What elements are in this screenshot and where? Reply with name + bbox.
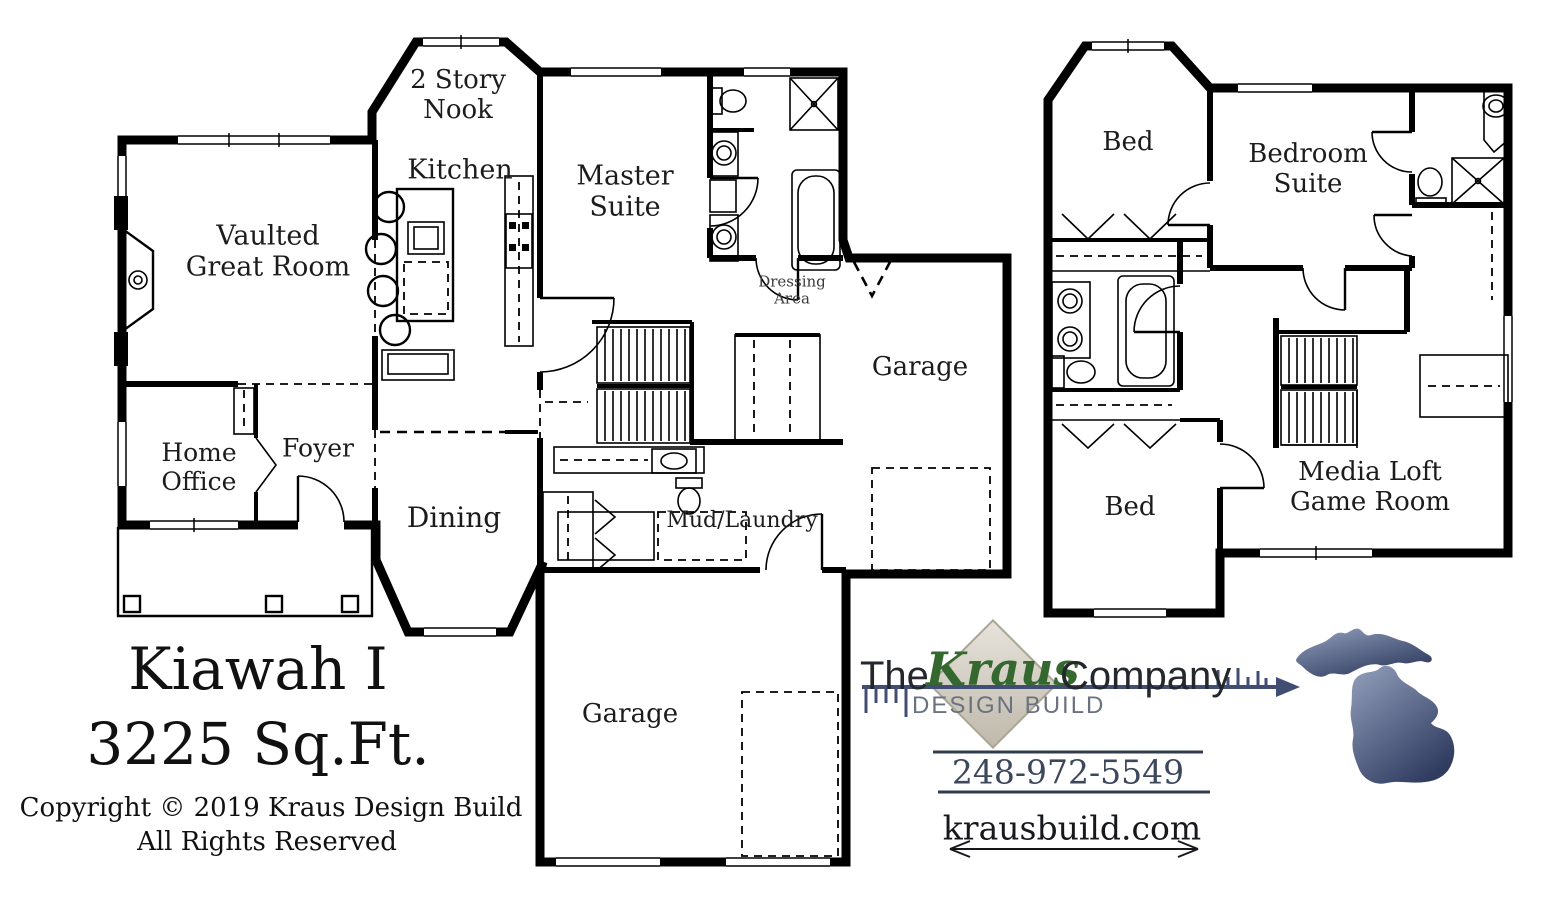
- room-label-nook: 2 Story Nook: [410, 65, 506, 125]
- porch: [118, 527, 372, 616]
- rights-line: All Rights Reserved: [137, 827, 397, 857]
- plan-title: Kiawah I: [128, 635, 387, 703]
- copyright-line: Copyright © 2019 Kraus Design Build: [20, 793, 523, 823]
- logo-kraus-text: Kraus: [926, 642, 1079, 696]
- room-label-home-office: Home Office: [161, 438, 236, 496]
- room-label-garage-side: Garage: [872, 352, 968, 382]
- room-label-bed-rear: Bed: [1104, 492, 1155, 522]
- room-label-bed-front: Bed: [1102, 127, 1153, 157]
- room-label-mud-laundry: Mud/Laundry: [666, 508, 817, 534]
- michigan-state-icon: [1296, 629, 1454, 784]
- floor-plan-sheet: 2 Story Nook Kitchen Vaulted Great Room …: [0, 0, 1568, 923]
- logo-tagline: DESIGN BUILD: [912, 692, 1105, 720]
- logo-arrowhead-icon: [1276, 677, 1300, 697]
- website-link: krausbuild.com: [943, 809, 1201, 848]
- room-label-dressing-area: Dressing Area: [758, 274, 826, 309]
- room-label-media-loft: Media Loft Game Room: [1290, 457, 1450, 517]
- room-label-great-room: Vaulted Great Room: [186, 221, 350, 284]
- room-label-dining: Dining: [407, 502, 501, 534]
- room-label-master-suite: Master Suite: [576, 161, 673, 224]
- second-floor-plan: [1048, 38, 1515, 620]
- room-label-bedroom-suite: Bedroom Suite: [1248, 139, 1368, 199]
- phone-number: 248-972-5549: [952, 753, 1184, 792]
- room-label-foyer: Foyer: [282, 434, 354, 463]
- room-label-garage-rear: Garage: [582, 699, 678, 729]
- room-label-kitchen: Kitchen: [407, 154, 513, 185]
- plan-area: 3225 Sq.Ft.: [86, 710, 429, 778]
